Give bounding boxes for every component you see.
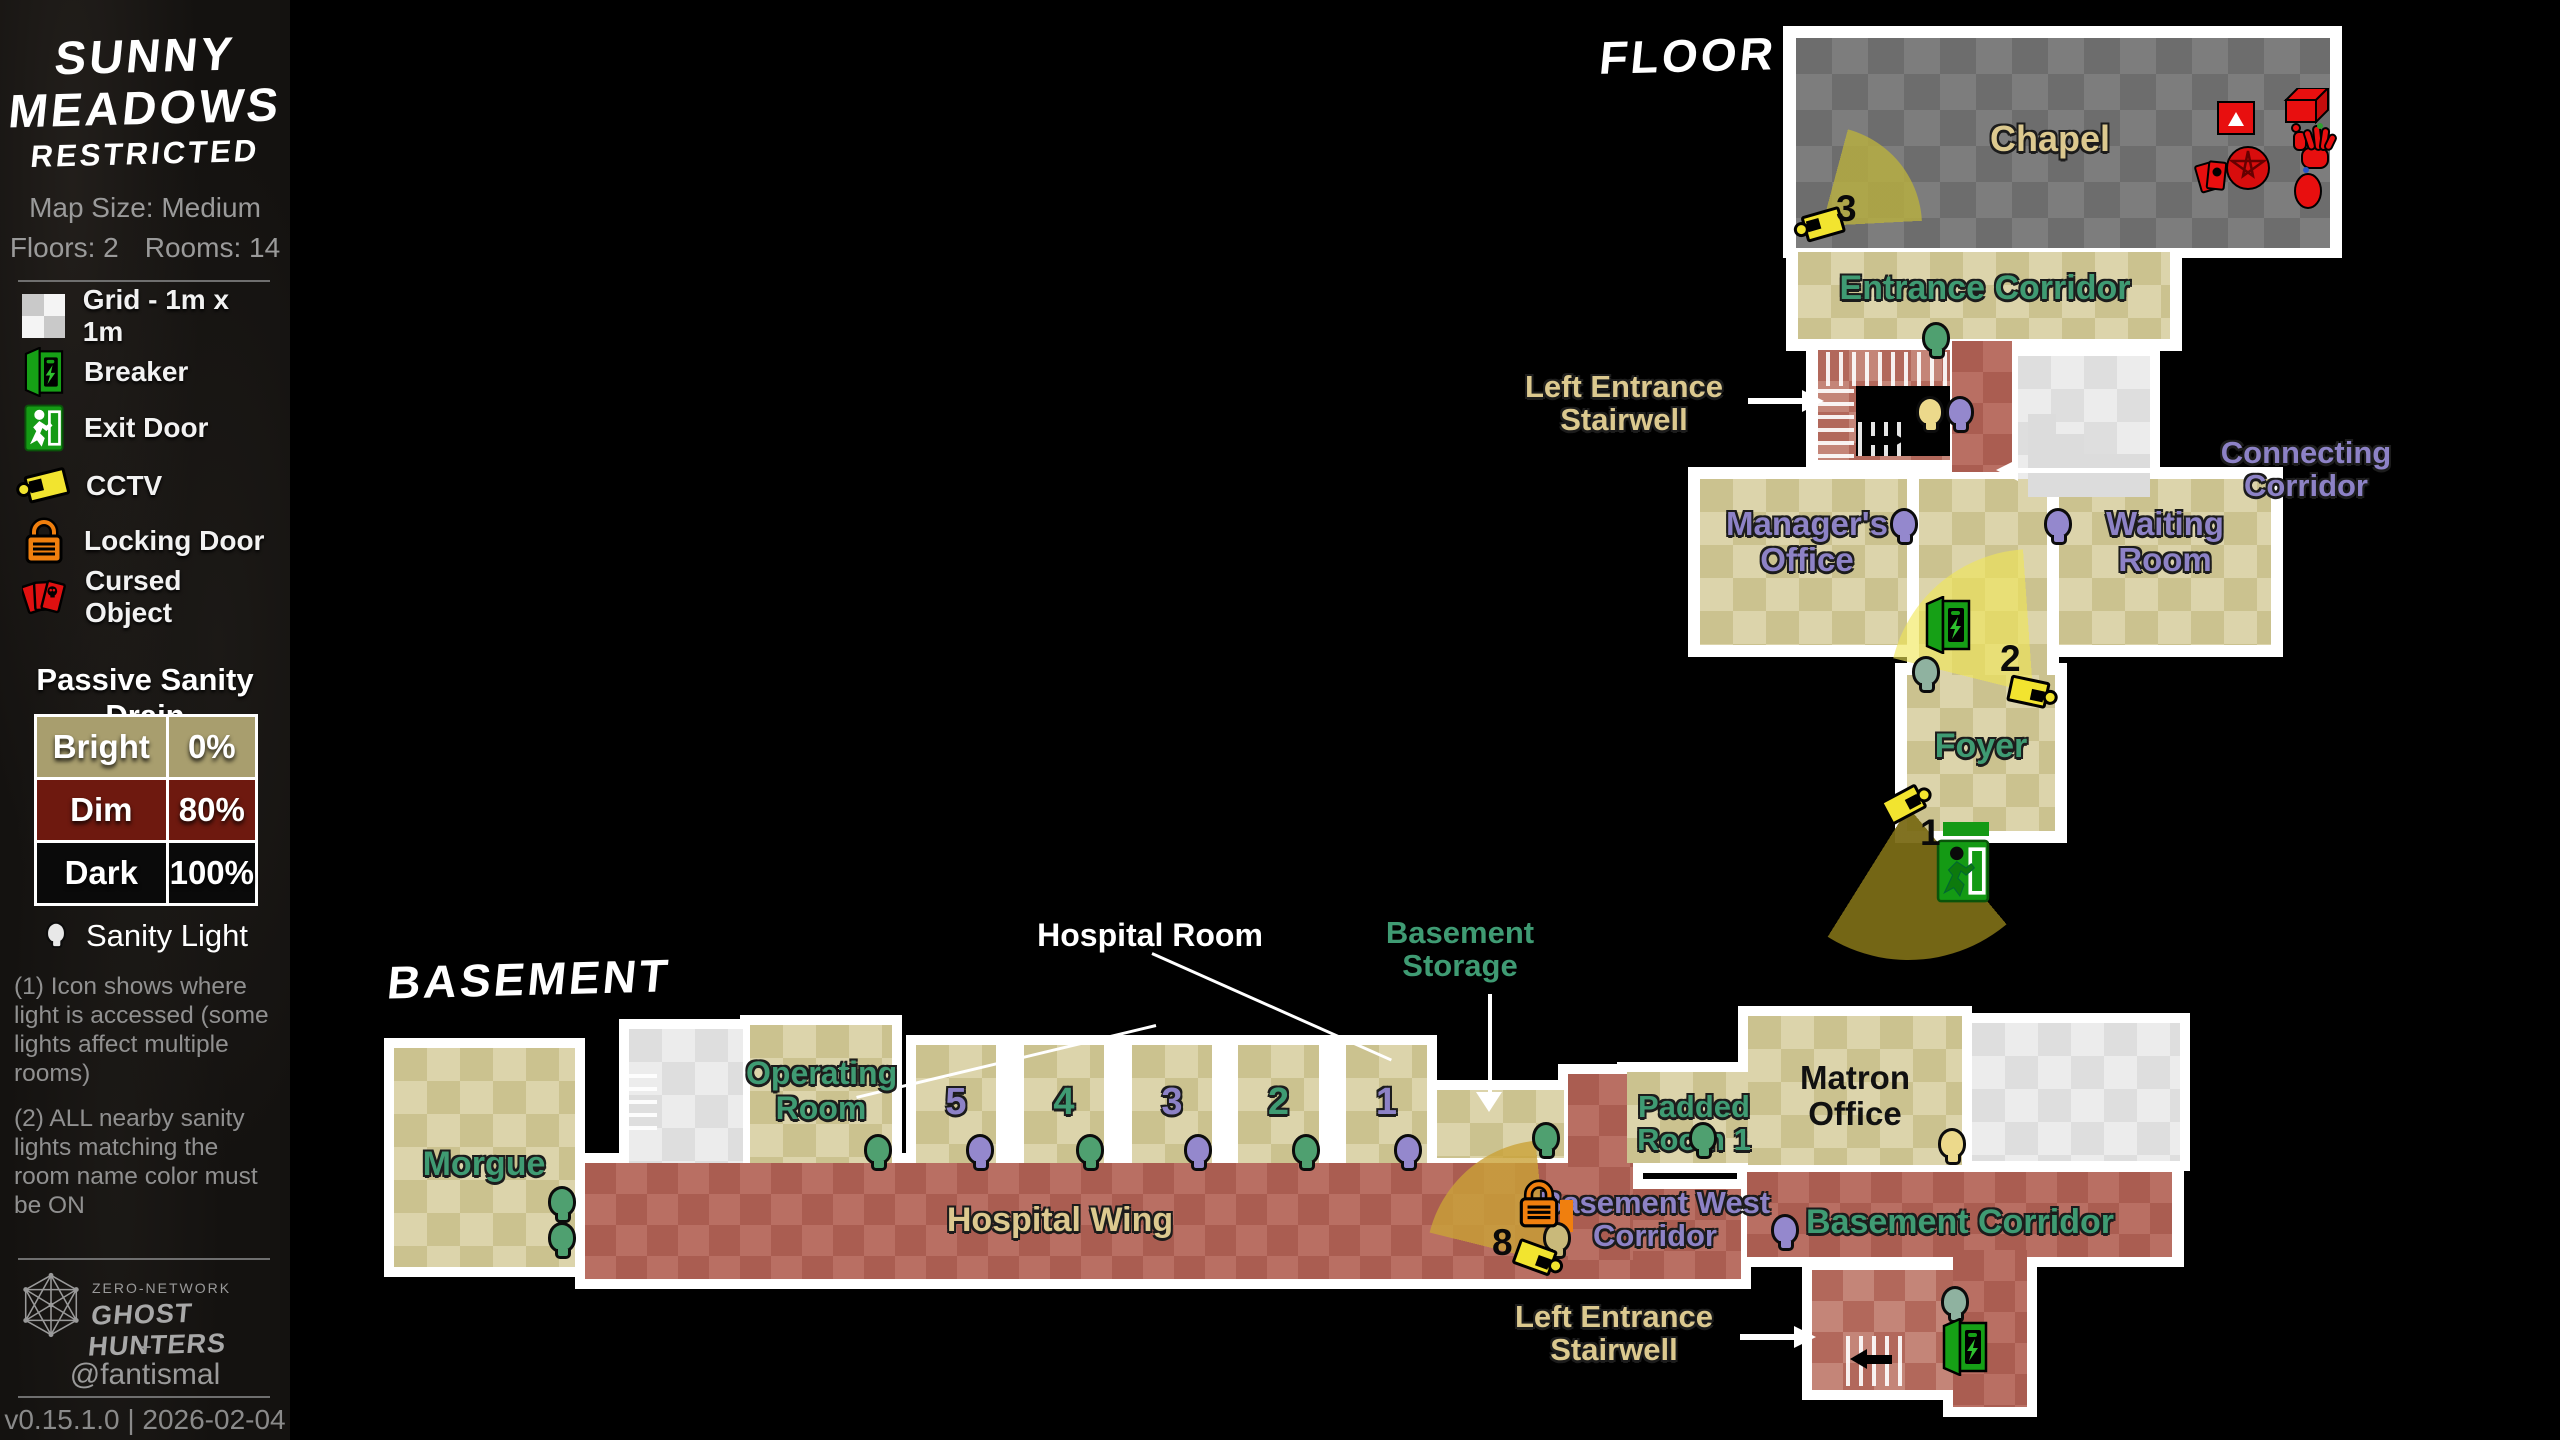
room-label-matron-office: Matron Office <box>1785 1060 1925 1131</box>
drain-level: Dim <box>36 779 168 842</box>
room-label-1: 1 <box>1346 1082 1427 1123</box>
sanity-light-icon-green <box>1912 656 1940 696</box>
legend-label: Grid - 1m x 1m <box>83 284 272 348</box>
breaker-icon-basement <box>1941 1318 1989 1376</box>
staircase-shape <box>2018 356 2150 497</box>
table-row: Bright 0% <box>36 716 257 779</box>
sanity-light-row: Sanity Light <box>0 916 290 956</box>
basement-title: BASEMENT <box>385 948 673 1009</box>
footer-handle: @fantismal <box>0 1358 290 1392</box>
legend-item-locking-door: Locking Door <box>22 516 272 566</box>
legend-label: Breaker <box>84 356 188 388</box>
annotation-hospital-room: Hospital Room <box>1020 918 1280 953</box>
map-size-text: Map Size: Medium <box>0 192 290 224</box>
grid-icon <box>22 294 65 338</box>
arrow-head-right <box>1802 390 1824 412</box>
annotation-left-entrance-stairwell-basement: Left Entrance Stairwell <box>1498 1300 1730 1367</box>
annotation-left-entrance-stairwell-f1: Left Entrance Stairwell <box>1508 370 1740 437</box>
breaker-icon-f1 <box>1924 596 1972 654</box>
stair-direction-arrowhead <box>1850 1349 1867 1369</box>
room-label-entrance-corridor: Entrance Corridor <box>1830 270 2140 307</box>
arrow-line <box>1748 398 1804 404</box>
annotation-basement-storage: Basement Storage <box>1375 916 1545 983</box>
sanity-light-bulb-icon <box>46 922 66 951</box>
table-row: Dark 100% <box>36 842 257 905</box>
sanity-light-icon-green <box>1076 1134 1104 1174</box>
legend-label: Cursed Object <box>85 565 272 629</box>
zero-network-logo <box>18 1272 84 1338</box>
version-text: v0.15.1.0 | 2026-02-04 <box>0 1404 290 1436</box>
room-label-basement-corridor: Basement Corridor <box>1770 1204 2150 1241</box>
stair-direction-arrowhead <box>1888 430 1905 450</box>
drain-level: Dark <box>36 842 168 905</box>
breaker-icon <box>22 347 66 397</box>
legend-label: CCTV <box>86 470 162 502</box>
drain-value: 80% <box>167 779 256 842</box>
cursed-object-icon <box>22 574 67 620</box>
annotation-connecting-corridor: Connecting Corridor <box>2200 436 2412 503</box>
map-guide-page: SUNNY MEADOWS RESTRICTED Map Size: Mediu… <box>0 0 2560 1440</box>
sanity-light-icon-purple <box>2044 508 2072 548</box>
room-label-morgue: Morgue <box>404 1146 564 1183</box>
sanity-light-icon-green <box>1532 1122 1560 1162</box>
area-unexplored-basement <box>1972 1023 2180 1161</box>
arrow-head-down <box>1476 1092 1502 1112</box>
arrow-line <box>1740 1334 1796 1340</box>
room-label-hospital-wing: Hospital Wing <box>920 1202 1200 1239</box>
sanity-light-heading: Sanity Light <box>86 918 248 954</box>
map-title-line2: MEADOWS <box>0 76 293 139</box>
sanity-light-icon-green <box>1922 322 1950 362</box>
sanity-light-icon-green <box>548 1186 576 1226</box>
drain-level: Bright <box>36 716 168 779</box>
drain-value: 0% <box>167 716 256 779</box>
drain-value: 100% <box>167 842 256 905</box>
sanity-drain-table: Bright 0% Dim 80% Dark 100% <box>34 714 258 906</box>
sidebar: SUNNY MEADOWS RESTRICTED Map Size: Mediu… <box>0 0 290 1440</box>
legend-label: Exit Door <box>84 412 208 444</box>
room-label-foyer: Foyer <box>1911 728 2051 765</box>
exit-door-icon <box>22 404 66 452</box>
sanity-light-icon-purple <box>1184 1134 1212 1174</box>
room-label-chapel: Chapel <box>1930 120 2170 159</box>
arrow-head-right <box>1794 1326 1816 1348</box>
rooms-count: Rooms: 14 <box>145 232 280 264</box>
divider <box>18 1396 270 1398</box>
cursed-objects-cluster <box>2190 88 2340 213</box>
sanity-light-icon-green <box>1292 1134 1320 1174</box>
camera-number-3: 3 <box>1836 188 1857 230</box>
divider <box>18 1258 270 1260</box>
legend-label: Locking Door <box>84 525 264 557</box>
legend-item-grid: Grid - 1m x 1m <box>22 292 272 340</box>
sanity-light-icon-purple <box>1946 396 1974 436</box>
legend-item-breaker: Breaker <box>22 348 272 396</box>
room-label-operating-room: Operating Room <box>746 1056 896 1125</box>
sanity-light-icon-purple <box>1771 1214 1799 1254</box>
floors-rooms-row: Floors: 2 Rooms: 14 <box>0 232 290 264</box>
table-row: Dim 80% <box>36 779 257 842</box>
sanity-light-icon-green <box>548 1222 576 1262</box>
sanity-light-icon-green <box>864 1134 892 1174</box>
room-label-3: 3 <box>1132 1082 1212 1123</box>
legend-item-exit-door: Exit Door <box>22 404 272 452</box>
arrow-head-left <box>1996 459 2018 481</box>
sanity-light-note-1: (1) Icon shows where light is accessed (… <box>14 972 280 1088</box>
camera-number-8: 8 <box>1492 1222 1513 1264</box>
map-title-line3: RESTRICTED <box>0 132 292 176</box>
floors-count: Floors: 2 <box>10 232 119 264</box>
cctv-icon <box>15 463 74 509</box>
stairs-stripes <box>629 1066 657 1130</box>
camera-number-2: 2 <box>2000 638 2021 680</box>
stair-direction-arrow <box>1862 436 1888 445</box>
pointer-line <box>1488 994 1492 1094</box>
room-label-2: 2 <box>1238 1082 1319 1123</box>
sanity-light-icon-green <box>1689 1122 1717 1162</box>
locking-door-icon-map <box>1516 1178 1562 1230</box>
legend-item-cursed-object: Cursed Object <box>22 572 272 622</box>
divider <box>18 280 270 282</box>
sanity-light-icon-yellow <box>1916 396 1944 436</box>
sanity-light-note-2: (2) ALL nearby sanity lights matching th… <box>14 1104 280 1220</box>
room-label-4: 4 <box>1024 1082 1104 1123</box>
room-label-5: 5 <box>916 1082 996 1123</box>
footer-network: ZERO-NETWORK <box>92 1280 231 1296</box>
legend-item-cctv: CCTV <box>18 462 272 510</box>
exit-door-icon-foyer <box>1936 838 1990 904</box>
room-label-managers-office: Manager's Office <box>1722 506 1892 577</box>
sanity-light-icon-yellow <box>1938 1128 1966 1168</box>
sanity-light-icon-purple <box>1394 1134 1422 1174</box>
stair-direction-arrow <box>1866 1355 1892 1364</box>
sanity-light-icon-purple <box>966 1134 994 1174</box>
sanity-light-icon-purple <box>1890 508 1918 548</box>
room-label-waiting-room: Waiting Room <box>2105 506 2225 577</box>
exit-door-marker <box>1943 822 1989 836</box>
locking-door-icon <box>22 516 66 566</box>
camera-number-1: 1 <box>1920 812 1941 854</box>
